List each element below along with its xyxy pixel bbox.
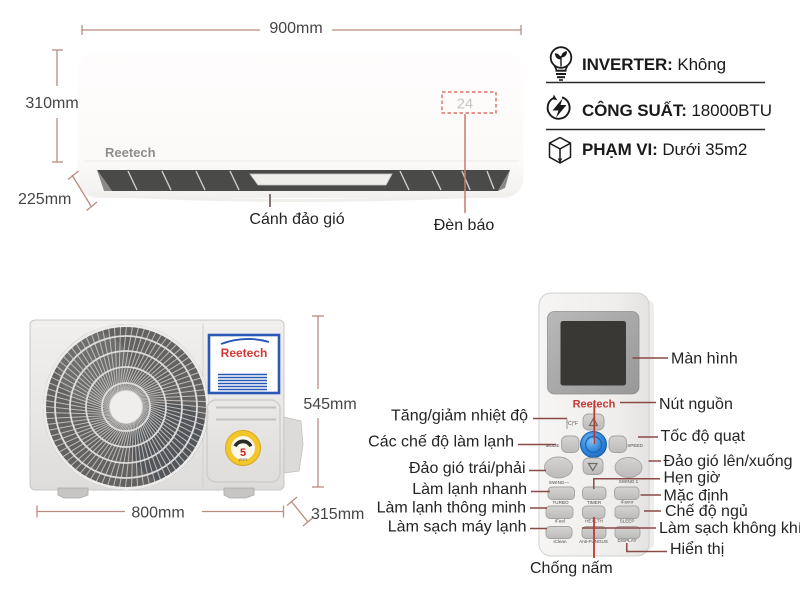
svg-text:Tốc độ quạt: Tốc độ quạt bbox=[661, 428, 746, 445]
svg-text:PHẠM VI: Dưới 35m2: PHẠM VI: Dưới 35m2 bbox=[582, 140, 747, 159]
svg-text:Làm lạnh thông minh: Làm lạnh thông minh bbox=[377, 500, 526, 517]
svg-text:Hẹn giờ: Hẹn giờ bbox=[664, 470, 721, 487]
svg-text:Đảo gió trái/phải: Đảo gió trái/phải bbox=[409, 460, 526, 477]
svg-text:310mm: 310mm bbox=[25, 95, 78, 112]
svg-text:Tăng/giảm nhiệt độ: Tăng/giảm nhiệt độ bbox=[391, 408, 528, 425]
svg-text:TURBO: TURBO bbox=[552, 500, 569, 505]
svg-text:SLEEP: SLEEP bbox=[620, 519, 635, 524]
svg-text:Reetech: Reetech bbox=[105, 145, 156, 160]
svg-text:CÔNG SUẤT: 18000BTU: CÔNG SUẤT: 18000BTU bbox=[582, 101, 772, 120]
svg-text:DISPLAY: DISPLAY bbox=[617, 538, 636, 543]
svg-text:Nút nguồn: Nút nguồn bbox=[659, 396, 733, 413]
svg-text:SWING 1: SWING 1 bbox=[619, 479, 639, 484]
svg-text:iFavor: iFavor bbox=[621, 500, 634, 505]
svg-text:24: 24 bbox=[457, 97, 473, 113]
svg-text:225mm: 225mm bbox=[18, 191, 71, 208]
svg-text:Màn hình: Màn hình bbox=[671, 351, 738, 368]
svg-text:Đảo gió lên/xuống: Đảo gió lên/xuống bbox=[664, 453, 793, 470]
svg-text:SWING―: SWING― bbox=[549, 480, 570, 485]
svg-text:Chế độ ngủ: Chế độ ngủ bbox=[665, 503, 748, 520]
svg-text:Đèn báo: Đèn báo bbox=[434, 217, 495, 234]
svg-text:Cánh đảo gió: Cánh đảo gió bbox=[249, 211, 344, 228]
svg-text:Hiển thị: Hiển thị bbox=[670, 540, 724, 558]
svg-text:Các chế độ làm lạnh: Các chế độ làm lạnh bbox=[368, 434, 514, 451]
svg-text:Chống nấm: Chống nấm bbox=[530, 560, 613, 577]
svg-text:545mm: 545mm bbox=[303, 396, 356, 413]
svg-text:800mm: 800mm bbox=[131, 505, 184, 522]
svg-text:INVERTER: Không: INVERTER: Không bbox=[582, 55, 726, 74]
svg-text:iClean: iClean bbox=[553, 539, 566, 544]
svg-text:Làm sạch máy lạnh: Làm sạch máy lạnh bbox=[388, 519, 527, 536]
svg-text:°C|°F: °C|°F bbox=[566, 421, 578, 427]
svg-text:Mặc định: Mặc định bbox=[664, 488, 729, 505]
svg-text:TIMER: TIMER bbox=[587, 500, 602, 505]
svg-text:iFeel: iFeel bbox=[555, 519, 565, 524]
svg-text:Làm lạnh nhanh: Làm lạnh nhanh bbox=[412, 481, 527, 498]
svg-text:315mm: 315mm bbox=[311, 506, 364, 523]
svg-text:SPEED: SPEED bbox=[627, 443, 643, 448]
svg-text:years: years bbox=[239, 458, 248, 462]
svg-text:Làm sạch không khí: Làm sạch không khí bbox=[659, 520, 800, 537]
svg-text:900mm: 900mm bbox=[269, 20, 322, 37]
svg-text:Reetech: Reetech bbox=[221, 346, 268, 360]
